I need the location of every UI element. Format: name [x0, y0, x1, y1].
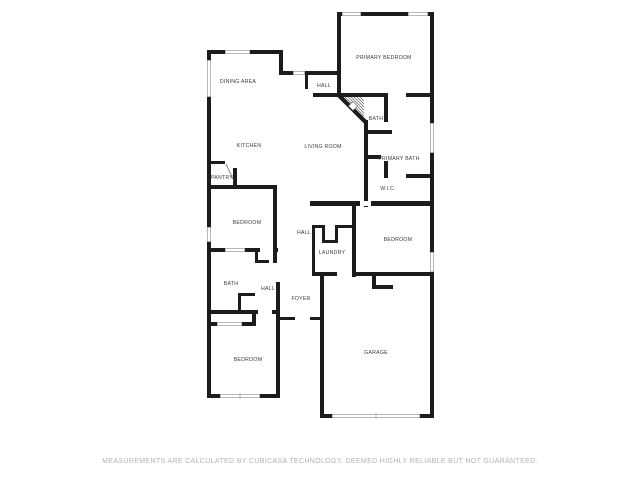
wall: [310, 317, 322, 320]
room-label-bedroom-lower: BEDROOM: [234, 357, 263, 363]
door-opening: [360, 201, 371, 206]
room-label-dining-area: DINING AREA: [220, 79, 256, 85]
room-label-laundry: LAUNDRY: [319, 250, 346, 256]
room-label-wic: W.I.C.: [380, 186, 396, 192]
room-label-bedroom-right: BEDROOM: [384, 237, 413, 243]
door-opening: [258, 310, 272, 314]
wall: [276, 282, 280, 398]
wall: [335, 225, 338, 243]
door-opening: [260, 248, 273, 252]
wall: [406, 174, 430, 178]
wall: [352, 272, 434, 276]
room-label-kitchen: KITCHEN: [237, 143, 262, 149]
floor-plan-svg: DINING AREAHALLPRIMARY BEDROOMKITCHENLIV…: [0, 0, 640, 480]
wall: [352, 201, 356, 277]
room-label-pantry: PANTRY: [211, 175, 233, 181]
wall: [420, 414, 434, 418]
room-label-hall-middle: HALL: [297, 230, 311, 236]
wall: [364, 130, 392, 134]
room-label-bath-suite: BATH: [369, 116, 383, 122]
wall: [305, 71, 341, 75]
wall: [310, 201, 434, 206]
floor-plan-page: DINING AREAHALLPRIMARY BEDROOMKITCHENLIV…: [0, 0, 640, 480]
wall: [278, 317, 295, 320]
room-label-hall-upper: HALL: [317, 83, 331, 89]
wall: [384, 95, 388, 122]
wall: [312, 225, 322, 228]
wall: [320, 414, 334, 418]
room-label-bedroom-left: BEDROOM: [233, 220, 262, 226]
door-opening: [388, 93, 406, 97]
room-label-garage: GARAGE: [364, 350, 388, 356]
room-label-foyer: FOYER: [291, 296, 310, 302]
room-label-living-room: LIVING ROOM: [304, 144, 341, 150]
wall: [279, 71, 295, 75]
wall: [207, 50, 211, 398]
wall: [313, 93, 434, 97]
wall: [320, 272, 324, 418]
wall: [372, 285, 393, 289]
stairs-hatch: [357, 97, 364, 104]
wall: [337, 12, 341, 97]
wall: [238, 293, 241, 311]
wall: [338, 225, 352, 228]
wall: [305, 71, 308, 89]
wall: [312, 272, 337, 276]
wall: [312, 225, 315, 275]
wall: [430, 12, 434, 418]
wall: [211, 185, 277, 189]
wall: [211, 161, 225, 164]
wall: [255, 260, 269, 263]
room-label-hall-lower: HALL: [261, 286, 275, 292]
disclaimer-text: MEASUREMENTS ARE CALCULATED BY CUBICASA …: [0, 458, 640, 465]
room-label-primary-bath: PRIMARY BATH: [378, 156, 419, 162]
room-label-primary-bedroom: PRIMARY BEDROOM: [356, 55, 411, 61]
room-label-bath-lower: BATH: [224, 281, 238, 287]
